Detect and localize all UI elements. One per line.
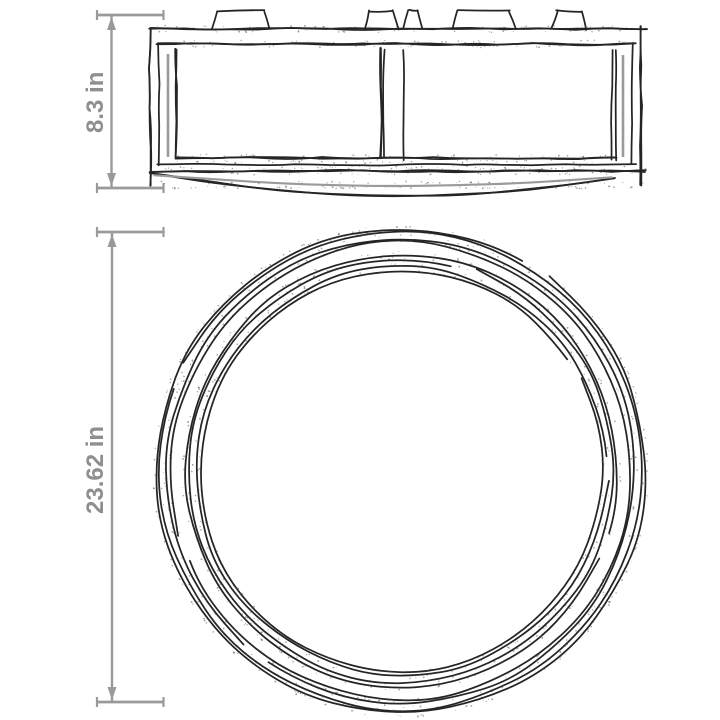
svg-text:8.3 in: 8.3 in bbox=[82, 72, 109, 133]
svg-text:23.62 in: 23.62 in bbox=[82, 426, 109, 514]
